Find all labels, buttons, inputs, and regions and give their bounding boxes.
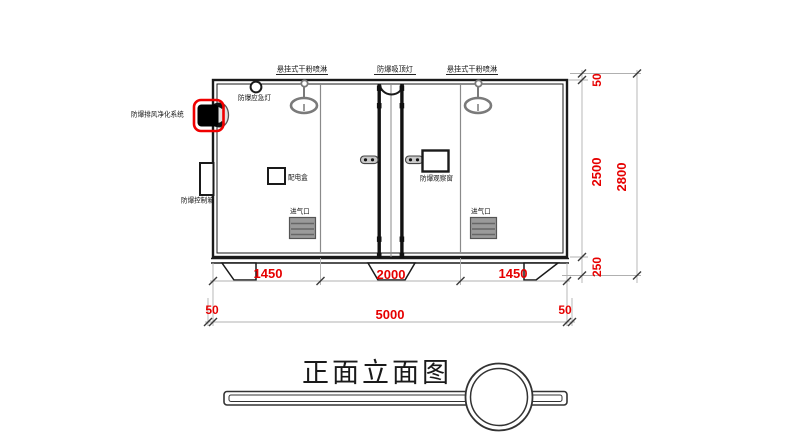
power-box-label: 配电盒 bbox=[288, 173, 308, 182]
dim-overhang-left: 50 bbox=[205, 303, 219, 317]
purifier-body bbox=[198, 105, 219, 127]
dim-bay-right: 1450 bbox=[499, 266, 528, 281]
door-post-left bbox=[378, 84, 381, 257]
ceiling-lamp-label: 防爆吸顶灯 bbox=[377, 65, 413, 74]
emergency-lamp-icon bbox=[251, 82, 262, 93]
observation-window-label: 防爆观察窗 bbox=[420, 174, 453, 183]
door-handle-left bbox=[361, 156, 379, 164]
purification-system-unit bbox=[194, 100, 229, 131]
dim-base-height: 250 bbox=[590, 257, 604, 277]
dim-height-overall: 2800 bbox=[614, 163, 629, 192]
control-box bbox=[200, 163, 214, 195]
door-post-right bbox=[400, 84, 403, 257]
emergency-lamp-label: 防爆应急灯 bbox=[238, 93, 271, 102]
dim-bay-center: 2000 bbox=[377, 267, 406, 282]
support-leg-right bbox=[524, 263, 558, 280]
dry-powder-sprinkler-right-icon bbox=[465, 80, 491, 113]
vertical-dimension-chain: 50 2500 250 2800 bbox=[562, 70, 641, 284]
dim-height-inner: 2500 bbox=[589, 158, 604, 187]
dim-overhang-right: 50 bbox=[558, 303, 572, 317]
air-inlet-right-grille bbox=[471, 218, 497, 239]
horizontal-dimension-chain: 1450 2000 1450 50 5000 50 bbox=[204, 258, 576, 326]
support-leg-left bbox=[222, 263, 256, 280]
dimension-ticks-vertical bbox=[578, 70, 641, 280]
elevation-drawing: 悬挂式干粉喷淋 防爆吸顶灯 悬挂式干粉喷淋 防爆应急灯 防爆排风净化系统 防爆控… bbox=[0, 0, 800, 445]
sprinkler-left-label: 悬挂式干粉喷淋 bbox=[277, 65, 327, 74]
section-marker-inner-circle bbox=[471, 369, 528, 426]
air-inlet-right-label: 进气口 bbox=[471, 207, 491, 216]
control-box-label: 防爆控制箱 bbox=[181, 196, 214, 205]
power-box bbox=[268, 168, 285, 184]
container-outer-wall bbox=[213, 80, 567, 257]
door-handle-right bbox=[406, 156, 424, 164]
title-block: 正面立面图 bbox=[224, 358, 567, 431]
container-box bbox=[211, 80, 569, 280]
purification-system-label: 防爆排风净化系统 bbox=[131, 110, 184, 119]
dry-powder-sprinkler-left-icon bbox=[291, 80, 317, 113]
observation-window bbox=[423, 151, 449, 172]
air-inlet-left-grille bbox=[290, 218, 316, 239]
center-door bbox=[361, 84, 424, 258]
dim-bay-left: 1450 bbox=[254, 266, 283, 281]
elevation-sheet: 悬挂式干粉喷淋 防爆吸顶灯 悬挂式干粉喷淋 防爆应急灯 防爆排风净化系统 防爆控… bbox=[0, 0, 800, 445]
equipment-labels: 悬挂式干粉喷淋 防爆吸顶灯 悬挂式干粉喷淋 防爆应急灯 防爆排风净化系统 防爆控… bbox=[131, 65, 498, 216]
air-inlet-left-label: 进气口 bbox=[290, 207, 310, 216]
drawing-title: 正面立面图 bbox=[302, 358, 452, 388]
dim-width-overall: 5000 bbox=[376, 307, 405, 322]
sprinkler-right-label: 悬挂式干粉喷淋 bbox=[447, 65, 497, 74]
dim-top-offset: 50 bbox=[590, 73, 604, 87]
